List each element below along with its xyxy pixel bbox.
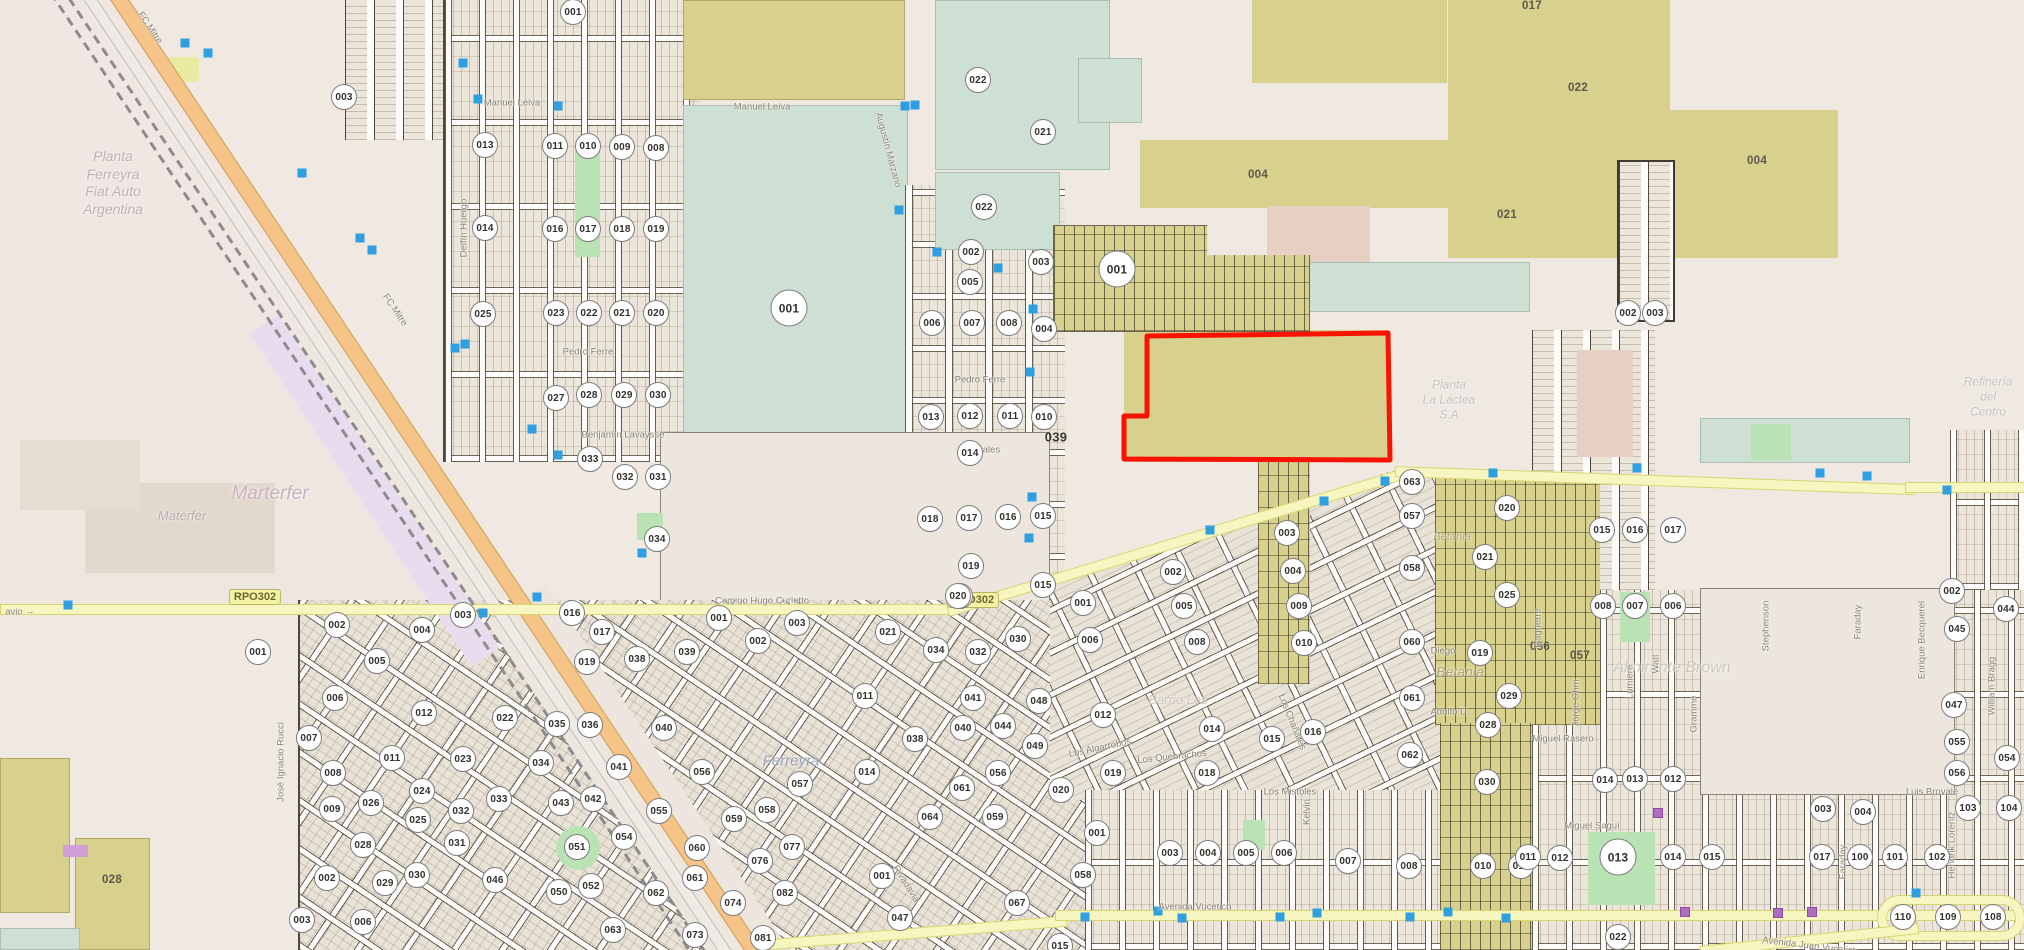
parcel-text-004: 004 [1248, 169, 1268, 181]
parcel-circle-022[interactable]: 022 [1605, 924, 1631, 950]
parcel-circle-016[interactable]: 016 [559, 600, 585, 626]
parcel-circle-049[interactable]: 049 [1022, 733, 1048, 759]
street-label: Diego [1431, 646, 1456, 657]
parcel-circle-012[interactable]: 012 [1547, 845, 1573, 871]
parcel-circle-077[interactable]: 077 [779, 834, 805, 860]
parcel-circle-034[interactable]: 034 [644, 526, 670, 552]
street-label: Camino Hugo Curletto [715, 596, 809, 607]
parcel-circle-038[interactable]: 038 [902, 726, 928, 752]
parcel-circle-013[interactable]: 013 [1600, 839, 1637, 876]
parcel-circle-022[interactable]: 022 [492, 705, 518, 731]
parcel-circle-060[interactable]: 060 [1399, 629, 1425, 655]
parcel-circle-020[interactable]: 020 [643, 300, 669, 326]
parcel-circle-023[interactable]: 023 [450, 746, 476, 772]
parcel-circle-025[interactable]: 025 [470, 301, 496, 327]
parcel-circle-008[interactable]: 008 [996, 310, 1022, 336]
parcel-circle-024[interactable]: 024 [409, 778, 435, 804]
parcel-circle-047[interactable]: 047 [887, 905, 913, 931]
stop-marker [895, 206, 904, 215]
parcel-circle-003[interactable]: 003 [289, 907, 315, 933]
parcel-circle-031[interactable]: 031 [444, 830, 470, 856]
parcel-circle-082[interactable]: 082 [772, 880, 798, 906]
area-label: Betania [1231, 425, 1268, 439]
poi-marker [1653, 808, 1663, 818]
parcel-circle-060[interactable]: 060 [684, 835, 710, 861]
parcel-circle-041[interactable]: 041 [960, 685, 986, 711]
parcel-circle-044[interactable]: 044 [1993, 596, 2019, 622]
stop-marker [459, 59, 468, 68]
parcel-circle-015[interactable]: 015 [1030, 503, 1056, 529]
stop-marker [1816, 469, 1825, 478]
parcel-circle-019[interactable]: 019 [1467, 640, 1493, 666]
stop-marker [479, 609, 488, 618]
parcel-circle-073[interactable]: 073 [682, 922, 708, 948]
parcel-circle-020[interactable]: 020 [945, 583, 971, 609]
parcel-circle-027[interactable]: 027 [543, 385, 569, 411]
street-label: Enrique Becquerel [1917, 601, 1928, 679]
parcel-circle-067[interactable]: 067 [1004, 890, 1030, 916]
street-label: Miguel Saguí [1564, 821, 1619, 832]
parcel-circle-063[interactable]: 063 [1399, 469, 1425, 495]
area-label: Ferreyra [763, 753, 820, 772]
parcel-circle-001[interactable]: 001 [1070, 590, 1096, 616]
parcel-circle-006[interactable]: 006 [919, 310, 945, 336]
parcel-circle-016[interactable]: 016 [995, 504, 1021, 530]
parcel-circle-048[interactable]: 048 [1026, 688, 1052, 714]
parcel-circle-005[interactable]: 005 [1171, 593, 1197, 619]
parcel-circle-005[interactable]: 005 [1233, 840, 1259, 866]
parcel-circle-018[interactable]: 018 [917, 506, 943, 532]
street-label: Kelvin [1302, 799, 1313, 825]
parcel-circle-002[interactable]: 002 [314, 865, 340, 891]
parcel-circle-009[interactable]: 009 [319, 796, 345, 822]
parcel-circle-003[interactable]: 003 [331, 84, 357, 110]
parcel-circle-007[interactable]: 007 [959, 310, 985, 336]
parcel-circle-063[interactable]: 063 [600, 917, 626, 943]
stop-marker [298, 169, 307, 178]
parcel-circle-009[interactable]: 009 [1286, 593, 1312, 619]
parcel-circle-018[interactable]: 018 [609, 216, 635, 242]
parcel-circle-021[interactable]: 021 [1472, 544, 1498, 570]
parcel-circle-013[interactable]: 013 [1622, 766, 1648, 792]
parcel-circle-031[interactable]: 031 [645, 464, 671, 490]
parcel-circle-015[interactable]: 015 [1699, 844, 1725, 870]
stop-marker [1502, 914, 1511, 923]
parcel-circle-076[interactable]: 076 [747, 848, 773, 874]
parcel-circle-001[interactable]: 001 [706, 605, 732, 631]
parcel-circle-104[interactable]: 104 [1996, 795, 2022, 821]
parcel-circle-032[interactable]: 032 [965, 639, 991, 665]
parcel-circle-074[interactable]: 074 [720, 890, 746, 916]
parcel-circle-001[interactable]: 001 [245, 639, 271, 665]
parcel-circle-022[interactable]: 022 [971, 194, 997, 220]
parcel-circle-036[interactable]: 036 [577, 712, 603, 738]
parcel-circle-004[interactable]: 004 [1031, 316, 1057, 342]
parcel-circle-081[interactable]: 081 [750, 925, 776, 950]
parcel-circle-012[interactable]: 012 [957, 403, 983, 429]
parcel-circle-110[interactable]: 110 [1890, 904, 1916, 930]
parcel-circle-059[interactable]: 059 [982, 804, 1008, 830]
parcel-circle-028[interactable]: 028 [576, 382, 602, 408]
stop-marker [933, 248, 942, 257]
parcel-circle-001[interactable]: 001 [1084, 820, 1110, 846]
area-label: Refinería del Centro [1964, 375, 2013, 420]
parcel-circle-020[interactable]: 020 [1494, 495, 1520, 521]
stop-marker [1081, 913, 1090, 922]
parcel-text-045: 045 [1253, 394, 1273, 406]
parcel-circle-010[interactable]: 010 [575, 133, 601, 159]
area-label: Barrio Los [1148, 692, 1207, 708]
stop-marker [1489, 469, 1498, 478]
stop-marker [1276, 913, 1285, 922]
parcel-circle-058[interactable]: 058 [754, 797, 780, 823]
parcel-circle-054[interactable]: 054 [1994, 745, 2020, 771]
parcel-circle-011[interactable]: 011 [852, 683, 878, 709]
parcel-circle-039[interactable]: 039 [674, 639, 700, 665]
parcel-circle-022[interactable]: 022 [965, 67, 991, 93]
parcel-circle-008[interactable]: 008 [1184, 629, 1210, 655]
stop-marker [1178, 914, 1187, 923]
stop-marker [1943, 486, 1952, 495]
stop-marker [1633, 464, 1642, 473]
parcel-circle-015[interactable]: 015 [1030, 572, 1056, 598]
parcel-circle-064[interactable]: 064 [917, 804, 943, 830]
parcel-circle-052[interactable]: 052 [578, 873, 604, 899]
street-label: Manuel Leiva [734, 102, 791, 113]
parcel-circle-038[interactable]: 038 [624, 646, 650, 672]
parcel-circle-047[interactable]: 047 [1941, 692, 1967, 718]
parcel-circle-008[interactable]: 008 [320, 760, 346, 786]
parcel-circle-025[interactable]: 025 [405, 807, 431, 833]
parcel-circle-050[interactable]: 050 [546, 879, 572, 905]
parcel-circle-058[interactable]: 058 [1399, 555, 1425, 581]
parcel-circle-010[interactable]: 010 [1031, 404, 1057, 430]
parcel-circle-023[interactable]: 023 [543, 300, 569, 326]
parcel-circle-017[interactable]: 017 [589, 619, 615, 645]
parcel-circle-034[interactable]: 034 [528, 750, 554, 776]
parcel-circle-021[interactable]: 021 [875, 619, 901, 645]
parcel-circle-032[interactable]: 032 [612, 464, 638, 490]
parcel-circle-029[interactable]: 029 [372, 870, 398, 896]
parcel-circle-012[interactable]: 012 [411, 700, 437, 726]
parcel-circle-046[interactable]: 046 [482, 867, 508, 893]
parcel-circle-019[interactable]: 019 [574, 649, 600, 675]
street-label: Stephenson [1761, 601, 1772, 652]
parcel-circle-017[interactable]: 017 [956, 505, 982, 531]
parcel-circle-040[interactable]: 040 [950, 715, 976, 741]
parcel-circle-019[interactable]: 019 [643, 216, 669, 242]
parcel-circle-014[interactable]: 014 [957, 440, 983, 466]
stop-marker [204, 49, 213, 58]
parcel-circle-003[interactable]: 003 [1642, 300, 1668, 326]
parcel-circle-030[interactable]: 030 [1005, 626, 1031, 652]
stop-marker [638, 549, 647, 558]
parcel-circle-026[interactable]: 026 [358, 790, 384, 816]
parcel-circle-056[interactable]: 056 [689, 759, 715, 785]
parcel-circle-030[interactable]: 030 [1474, 769, 1500, 795]
parcel-circle-058[interactable]: 058 [1070, 862, 1096, 888]
stop-marker [368, 246, 377, 255]
street-label: Pedro Ferre [563, 347, 614, 358]
street-label: avio → [5, 607, 35, 618]
stop-marker [1406, 913, 1415, 922]
parcel-circle-029[interactable]: 029 [1496, 683, 1522, 709]
parcel-circle-008[interactable]: 008 [1396, 853, 1422, 879]
parcel-circle-056[interactable]: 056 [985, 760, 1011, 786]
parcel-circle-019[interactable]: 019 [958, 553, 984, 579]
stop-marker [1863, 472, 1872, 481]
parcel-circle-006[interactable]: 006 [1660, 593, 1686, 619]
parcel-circle-002[interactable]: 002 [1615, 300, 1641, 326]
parcel-circle-003[interactable]: 003 [784, 610, 810, 636]
stop-marker [64, 601, 73, 610]
parcel-circle-030[interactable]: 030 [645, 382, 671, 408]
stop-marker [1320, 497, 1329, 506]
parcel-circle-055[interactable]: 055 [646, 798, 672, 824]
parcel-circle-007[interactable]: 007 [1335, 848, 1361, 874]
parcel-circle-021[interactable]: 021 [1030, 119, 1056, 145]
parcel-circle-003[interactable]: 003 [450, 602, 476, 628]
map-canvas[interactable]: 0030010130110100090080140160170180190250… [0, 0, 2024, 950]
road-avenue-e2 [1905, 482, 2024, 493]
parcel-circle-057[interactable]: 057 [1399, 503, 1425, 529]
parcel-circle-013[interactable]: 013 [918, 404, 944, 430]
street-label: Faraday [1853, 605, 1864, 640]
stop-marker [554, 451, 563, 460]
street-label: Faraday [1838, 845, 1849, 880]
parcel-text-028: 028 [102, 874, 122, 886]
parcel-circle-016[interactable]: 016 [542, 216, 568, 242]
area-label: Betania [1433, 531, 1470, 545]
parcel-circle-057[interactable]: 057 [787, 771, 813, 797]
parcel-circle-001[interactable]: 001 [869, 863, 895, 889]
street-label: Delfín Huergo [459, 199, 470, 258]
parcel-circle-041[interactable]: 041 [606, 754, 632, 780]
stop-marker [901, 102, 910, 111]
street-label: Augustín Marzano [873, 111, 904, 188]
street-label: Avenida Vucetich [1159, 902, 1232, 913]
area-label: Planta Ferreyra Fiat Auto Argentina [83, 148, 143, 218]
parcel-circle-055[interactable]: 055 [1944, 729, 1970, 755]
area-label: Planta La Láctea S.A [1423, 378, 1476, 423]
parcel-circle-005[interactable]: 005 [957, 269, 983, 295]
street-label: Los Mistoles [1264, 787, 1317, 798]
street-label: Hendrik Lorentz [1947, 811, 1958, 878]
parcel-circle-006[interactable]: 006 [322, 685, 348, 711]
street-label: Miguel Rasero [1532, 734, 1593, 745]
parcel-circle-014[interactable]: 014 [1592, 767, 1618, 793]
parcel-circle-018[interactable]: 018 [1194, 760, 1220, 786]
parcel-circle-010[interactable]: 010 [1291, 630, 1317, 656]
area-label: Betania [1436, 663, 1483, 681]
parcel-text-022: 022 [1568, 82, 1588, 94]
parcel-circle-102[interactable]: 102 [1924, 844, 1950, 870]
parcel-circle-029[interactable]: 029 [611, 382, 637, 408]
parcel-circle-020[interactable]: 020 [1048, 777, 1074, 803]
parcel-circle-062[interactable]: 062 [643, 880, 669, 906]
stop-marker [1313, 909, 1322, 918]
parcel-circle-030[interactable]: 030 [404, 862, 430, 888]
parcel-circle-010[interactable]: 010 [1470, 853, 1496, 879]
parcel-circle-013[interactable]: 013 [472, 132, 498, 158]
parcel-circle-051[interactable]: 051 [564, 834, 590, 860]
parcel-text-004: 004 [1747, 155, 1767, 167]
parcel-circle-109[interactable]: 109 [1935, 904, 1961, 930]
parcel-circle-003[interactable]: 003 [1274, 520, 1300, 546]
parcel-circle-016[interactable]: 016 [1300, 719, 1326, 745]
street-label: FC Mitre [380, 292, 409, 328]
parcel-circle-004[interactable]: 004 [1280, 558, 1306, 584]
parcel-text-017: 017 [1522, 0, 1542, 12]
parcel-circle-014[interactable]: 014 [1660, 844, 1686, 870]
parcel-circle-101[interactable]: 101 [1882, 844, 1908, 870]
parcel-circle-007[interactable]: 007 [296, 725, 322, 751]
parcel-circle-002[interactable]: 002 [958, 239, 984, 265]
parcel-circle-062[interactable]: 062 [1397, 742, 1423, 768]
parcel-circle-001[interactable]: 001 [1099, 251, 1136, 288]
parcel-circle-004[interactable]: 004 [1195, 840, 1221, 866]
stop-marker [356, 234, 365, 243]
parcel-circle-032[interactable]: 032 [448, 798, 474, 824]
stop-marker [1206, 526, 1215, 535]
street-label: Watt [1651, 654, 1662, 673]
parcel-circle-108[interactable]: 108 [1980, 904, 2006, 930]
street-label: Jorge Ohm [1571, 680, 1582, 727]
parcel-circle-042[interactable]: 042 [580, 786, 606, 812]
parcel-circle-044[interactable]: 044 [990, 713, 1016, 739]
parcel-circle-035[interactable]: 035 [544, 711, 570, 737]
parcel-circle-017[interactable]: 017 [575, 216, 601, 242]
parcel-circle-028[interactable]: 028 [350, 832, 376, 858]
street-label: Gramme [1689, 696, 1700, 733]
street-label: Luis Brovale [1906, 787, 1958, 798]
parcel-circle-002[interactable]: 002 [745, 628, 771, 654]
parcel-circle-022[interactable]: 022 [576, 300, 602, 326]
parcel-circle-100[interactable]: 100 [1847, 844, 1873, 870]
parcel-circle-014[interactable]: 014 [854, 759, 880, 785]
street-label: Benjamín Lavaysse [582, 430, 665, 441]
parcel-circle-061[interactable]: 061 [949, 775, 975, 801]
poi-marker [1773, 908, 1783, 918]
stop-marker [528, 425, 537, 434]
parcel-circle-015[interactable]: 015 [1047, 933, 1073, 950]
parcel-circle-006[interactable]: 006 [1271, 840, 1297, 866]
parcel-circle-009[interactable]: 009 [609, 134, 635, 160]
parcel-circle-033[interactable]: 033 [577, 446, 603, 472]
parcel-circle-019[interactable]: 019 [1100, 760, 1126, 786]
parcel-circle-059[interactable]: 059 [721, 806, 747, 832]
stop-marker [474, 95, 483, 104]
parcel-text-046: 046 [1210, 332, 1230, 344]
parcel-circle-002[interactable]: 002 [1939, 578, 1965, 604]
stop-marker [994, 264, 1003, 273]
street-label: Lumiere [1625, 665, 1636, 699]
parcel-circle-001[interactable]: 001 [560, 0, 586, 25]
parcel-circle-017[interactable]: 017 [1660, 517, 1686, 543]
parcel-circle-015[interactable]: 015 [1259, 726, 1285, 752]
parcel-circle-033[interactable]: 033 [486, 786, 512, 812]
parcel-circle-008[interactable]: 008 [1590, 593, 1616, 619]
parcel-circle-043[interactable]: 043 [548, 790, 574, 816]
stop-marker [911, 101, 920, 110]
stop-marker [1912, 889, 1921, 898]
parcel-circle-061[interactable]: 061 [682, 865, 708, 891]
parcel-circle-007[interactable]: 007 [1622, 593, 1648, 619]
parcel-circle-004[interactable]: 004 [1850, 799, 1876, 825]
parcel-circle-006[interactable]: 006 [1077, 627, 1103, 653]
parcel-circle-056[interactable]: 056 [1944, 760, 1970, 786]
parcel-circle-015[interactable]: 015 [1589, 517, 1615, 543]
stop-marker [181, 39, 190, 48]
poi-marker [1807, 907, 1817, 917]
parcel-circle-011[interactable]: 011 [542, 133, 568, 159]
stop-marker [1381, 477, 1390, 486]
parcel-text-021: 021 [1497, 209, 1517, 221]
area-label: Materfer [158, 508, 206, 524]
parcel-circle-001[interactable]: 001 [771, 290, 808, 327]
parcel-circle-003[interactable]: 003 [1157, 840, 1183, 866]
parcel-circle-061[interactable]: 061 [1399, 685, 1425, 711]
parcel-circle-003[interactable]: 003 [1810, 796, 1836, 822]
parcel-circle-011[interactable]: 011 [379, 745, 405, 771]
parcel-circle-045[interactable]: 045 [1944, 616, 1970, 642]
street-label: Rivadavia [890, 863, 921, 904]
stop-marker [1026, 368, 1035, 377]
parcel-circle-054[interactable]: 054 [611, 824, 637, 850]
parcel-circle-028[interactable]: 028 [1475, 712, 1501, 738]
parcel-text-039: 039 [1045, 430, 1068, 445]
route-shield: RPO302 [229, 589, 281, 605]
parcel-circle-025[interactable]: 025 [1494, 582, 1520, 608]
parcel-circle-103[interactable]: 103 [1955, 795, 1981, 821]
parcel-circle-034[interactable]: 034 [923, 637, 949, 663]
parcel-circle-017[interactable]: 017 [1809, 844, 1835, 870]
stop-marker [451, 344, 460, 353]
street-label: Manuel Leiva [484, 98, 541, 109]
stop-marker [1028, 493, 1037, 502]
stop-marker [461, 340, 470, 349]
parcel-circle-002[interactable]: 002 [1160, 559, 1186, 585]
street-label: José Ignacio Rucci [276, 722, 287, 802]
parcel-circle-004[interactable]: 004 [409, 617, 435, 643]
stop-marker [533, 593, 542, 602]
parcel-circle-014[interactable]: 014 [472, 215, 498, 241]
parcel-circle-040[interactable]: 040 [651, 715, 677, 741]
street-label: William Bragg [1987, 657, 1998, 716]
poi-marker [1680, 907, 1690, 917]
parcel-circle-011[interactable]: 011 [1515, 844, 1541, 870]
stop-marker [1025, 534, 1034, 543]
stop-marker [1029, 305, 1038, 314]
stop-marker [1444, 908, 1453, 917]
parcel-circle-012[interactable]: 012 [1660, 766, 1686, 792]
parcel-circle-002[interactable]: 002 [324, 612, 350, 638]
parcel-circle-008[interactable]: 008 [643, 135, 669, 161]
parcel-circle-021[interactable]: 021 [609, 300, 635, 326]
parcel-circle-014[interactable]: 014 [1199, 716, 1225, 742]
parcel-circle-016[interactable]: 016 [1622, 517, 1648, 543]
parcel-circle-012[interactable]: 012 [1090, 702, 1116, 728]
area-label: Marterfer [231, 482, 308, 506]
street-label: Adolfo D. [1430, 707, 1469, 718]
parcel-circle-003[interactable]: 003 [1028, 249, 1054, 275]
street-label: Pedro Ferre [955, 375, 1006, 386]
parcel-circle-006[interactable]: 006 [350, 909, 376, 935]
parcel-text-057: 057 [1570, 650, 1590, 662]
street-label: Los Algarrobos [1068, 736, 1132, 760]
parcel-circle-005[interactable]: 005 [364, 648, 390, 674]
parcel-circle-011[interactable]: 011 [997, 403, 1023, 429]
